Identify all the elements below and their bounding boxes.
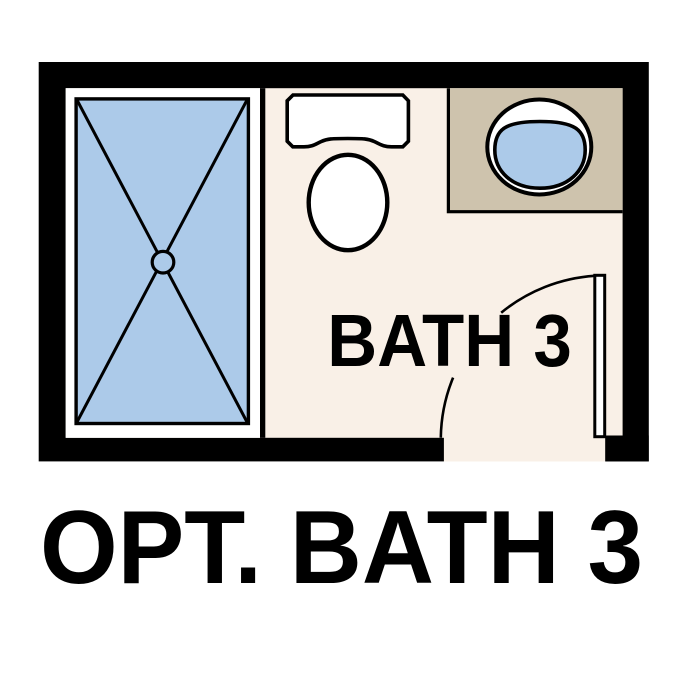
svg-text:OPT. BATH 3: OPT. BATH 3 [40,490,643,606]
svg-text:BATH 3: BATH 3 [327,299,572,382]
